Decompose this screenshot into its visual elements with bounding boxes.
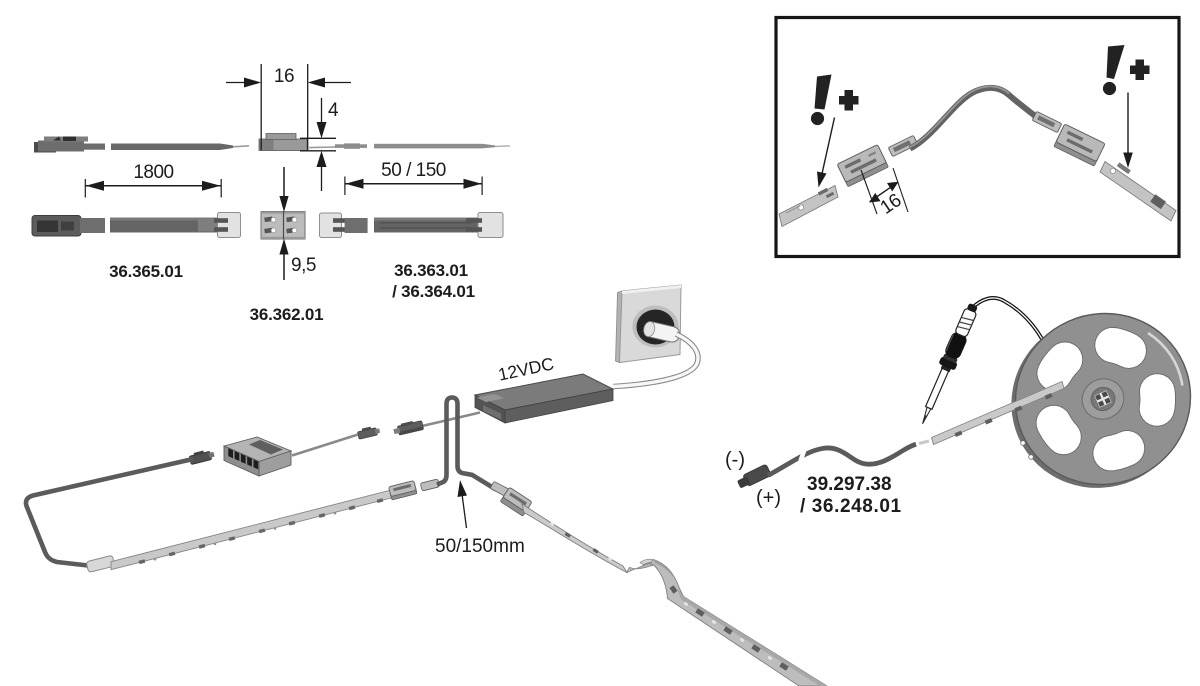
svg-text:1800: 1800 <box>133 162 173 183</box>
svg-text:/ 36.364.01: / 36.364.01 <box>392 282 475 301</box>
svg-text:50/150mm: 50/150mm <box>435 536 525 557</box>
svg-text:/ 36.248.01: / 36.248.01 <box>800 496 902 517</box>
svg-text:39.297.38: 39.297.38 <box>807 474 892 495</box>
svg-text:9,5: 9,5 <box>291 255 316 276</box>
svg-text:36.362.01: 36.362.01 <box>250 305 324 324</box>
svg-text:36.365.01: 36.365.01 <box>109 262 183 281</box>
svg-text:16: 16 <box>274 66 294 87</box>
svg-text:(+): (+) <box>756 487 781 509</box>
svg-text:4: 4 <box>328 100 339 121</box>
svg-text:(-): (-) <box>725 449 745 471</box>
svg-text:36.363.01: 36.363.01 <box>394 261 468 280</box>
svg-text:50 / 150: 50 / 150 <box>381 160 446 181</box>
